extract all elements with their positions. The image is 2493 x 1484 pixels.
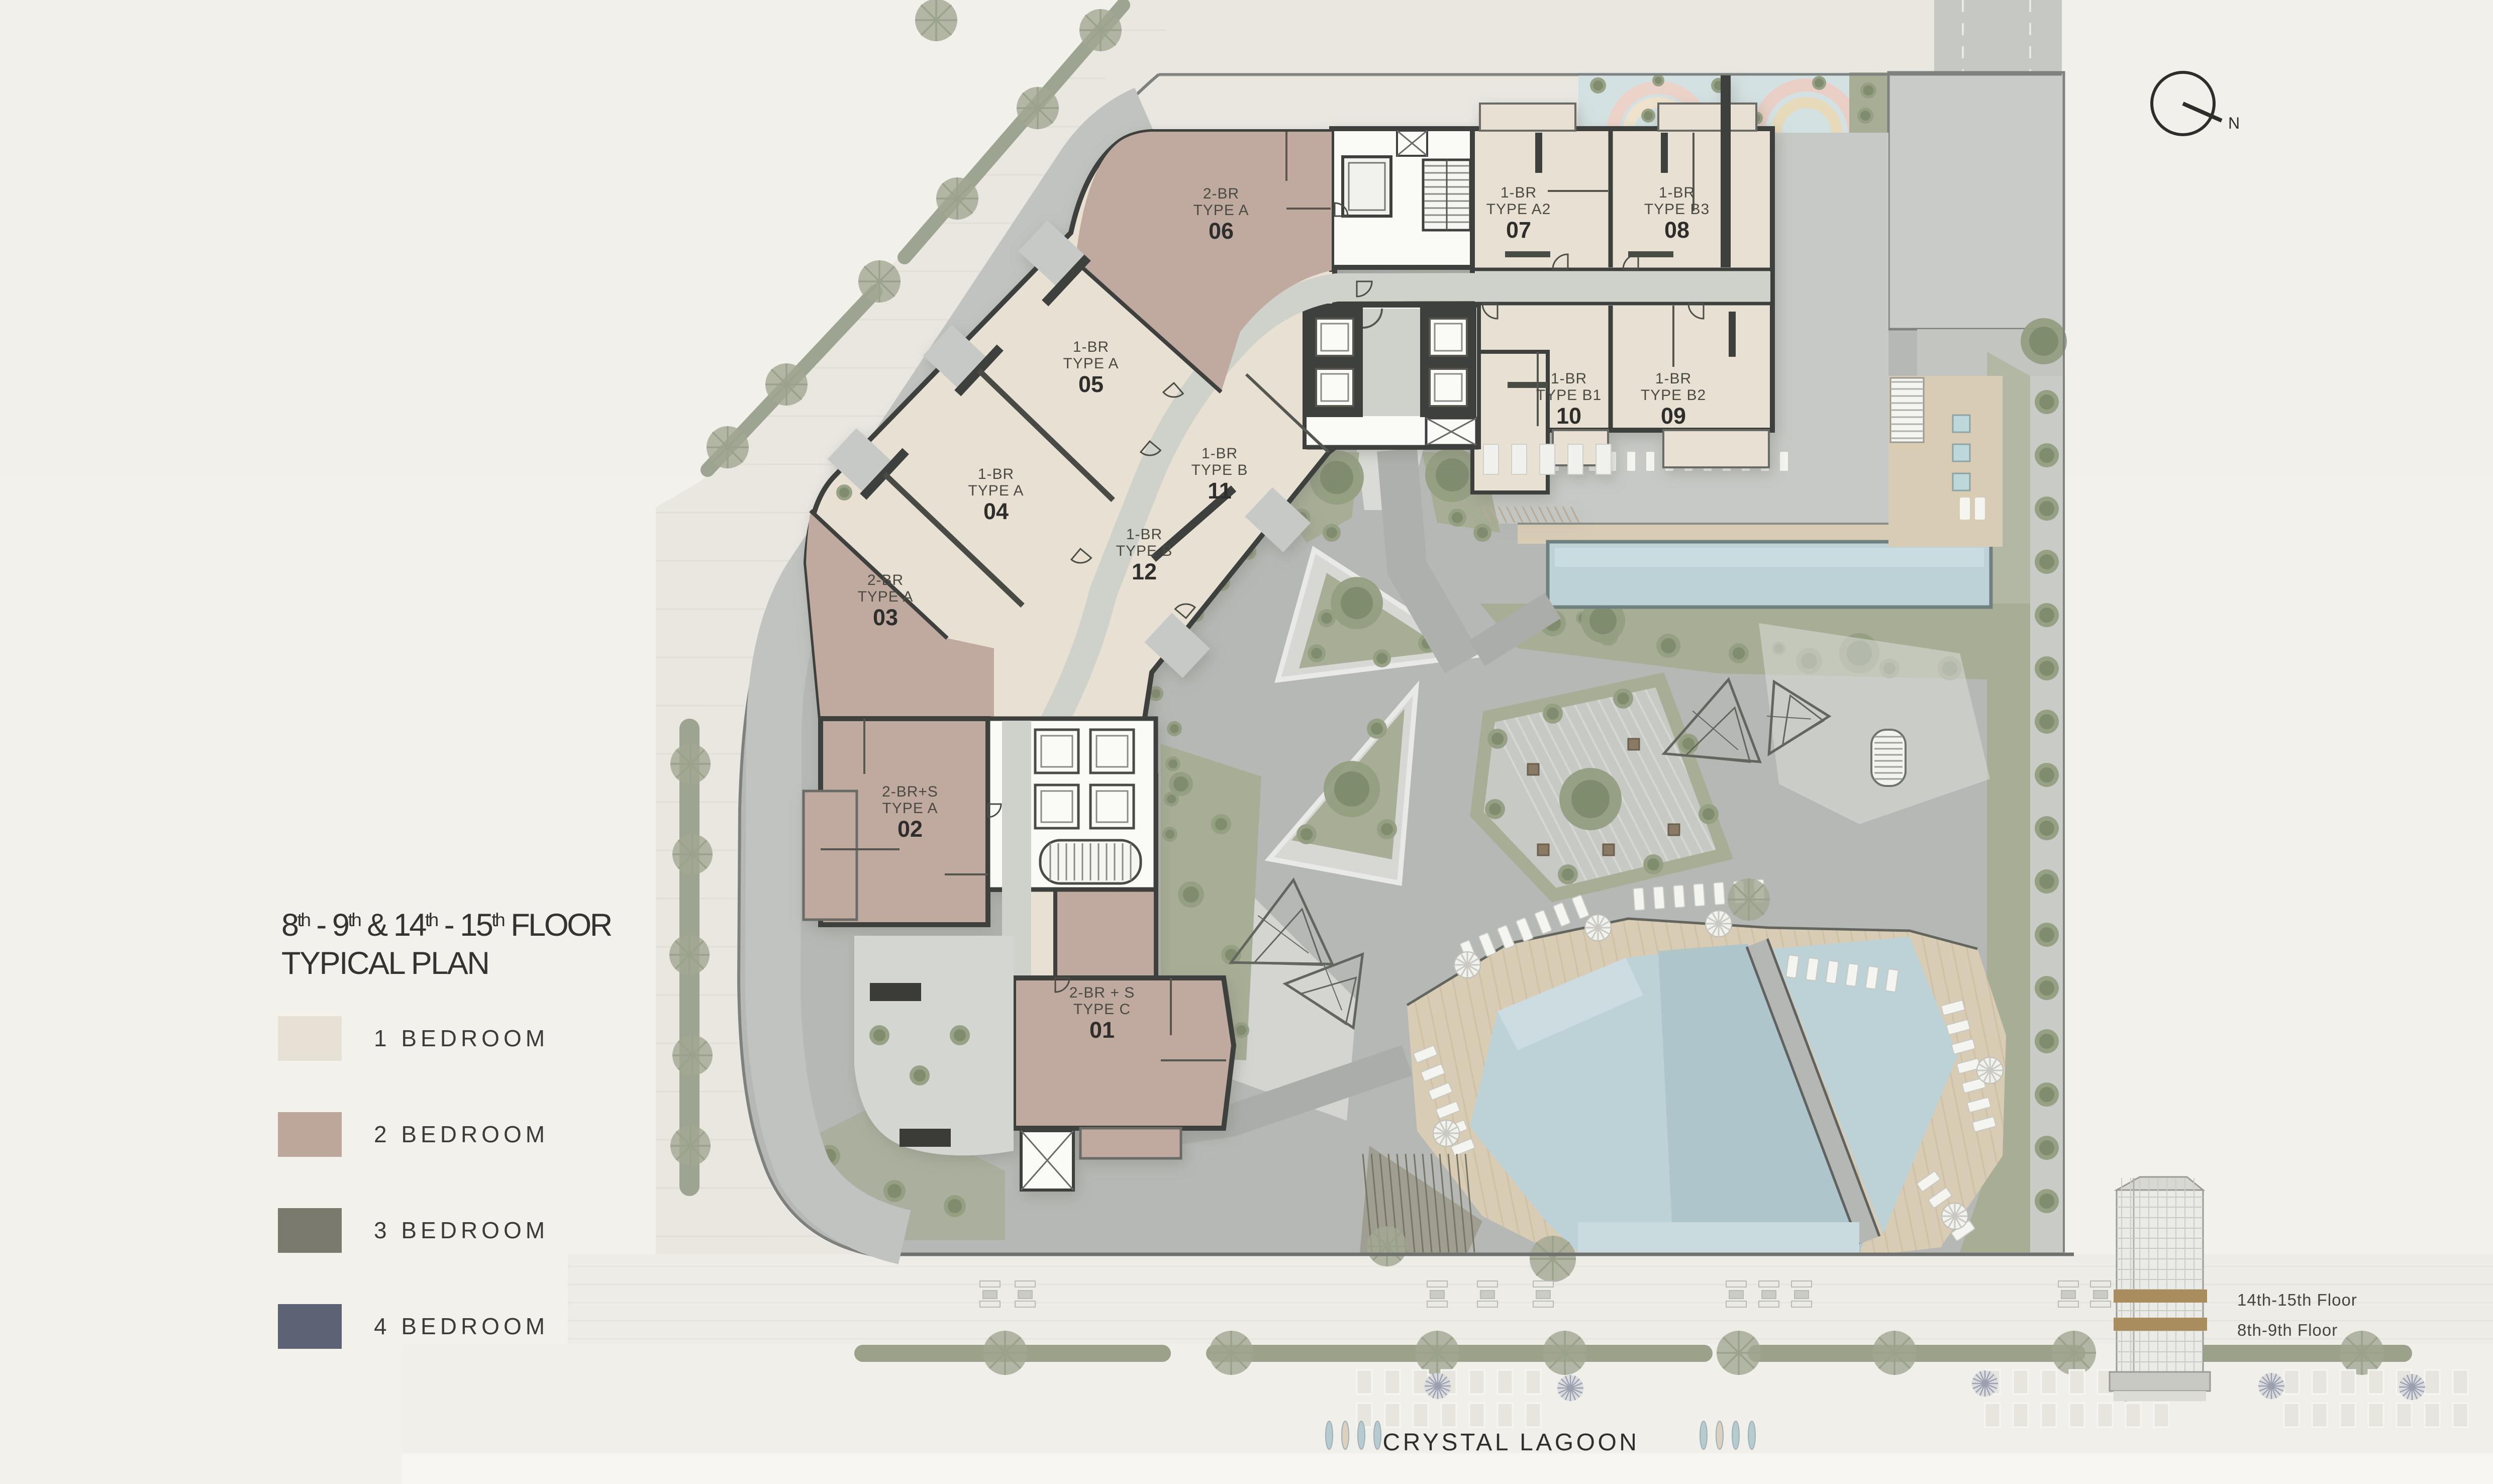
svg-text:TYPE B1: TYPE B1 (1536, 387, 1602, 404)
svg-text:TYPE A: TYPE A (882, 800, 938, 817)
svg-text:1-BR: 1-BR (1073, 339, 1109, 355)
svg-text:1-BR: 1-BR (1659, 184, 1695, 201)
svg-text:05: 05 (1078, 371, 1104, 397)
svg-text:2-BR: 2-BR (867, 572, 904, 588)
svg-text:TYPE B2: TYPE B2 (1641, 387, 1706, 404)
svg-text:3 BEDROOM: 3 BEDROOM (374, 1217, 549, 1243)
svg-text:03: 03 (873, 605, 898, 630)
svg-text:TYPE A2: TYPE A2 (1486, 201, 1551, 218)
svg-text:1-BR: 1-BR (1551, 370, 1587, 387)
svg-text:06: 06 (1209, 218, 1234, 244)
svg-text:TYPE A: TYPE A (1193, 202, 1249, 219)
svg-text:2-BR: 2-BR (1203, 185, 1239, 202)
svg-text:N: N (2228, 114, 2240, 132)
svg-text:1-BR: 1-BR (1126, 526, 1162, 543)
svg-text:2-BR+S: 2-BR+S (882, 783, 938, 800)
svg-text:1 BEDROOM: 1 BEDROOM (374, 1025, 549, 1051)
svg-text:11: 11 (1208, 478, 1232, 504)
svg-text:8th-9th Floor: 8th-9th Floor (2237, 1321, 2338, 1339)
svg-text:04: 04 (983, 499, 1009, 524)
svg-text:02: 02 (898, 816, 923, 842)
svg-text:01: 01 (1089, 1017, 1115, 1043)
svg-text:TYPE C: TYPE C (1073, 1001, 1131, 1018)
svg-text:TYPICAL PLAN: TYPICAL PLAN (281, 946, 488, 981)
svg-text:8th - 9th & 14th - 15th FLOOR: 8th - 9th & 14th - 15th FLOOR (281, 908, 612, 943)
svg-text:2-BR + S: 2-BR + S (1069, 984, 1135, 1001)
svg-text:TYPE B: TYPE B (1191, 462, 1248, 478)
svg-text:TYPE B: TYPE B (1116, 543, 1173, 559)
svg-text:TYPE A: TYPE A (1063, 355, 1119, 372)
svg-text:TYPE A: TYPE A (968, 482, 1024, 499)
svg-text:1-BR: 1-BR (1202, 445, 1238, 462)
svg-text:12: 12 (1132, 559, 1157, 584)
svg-text:10: 10 (1556, 403, 1581, 429)
svg-text:1-BR: 1-BR (978, 466, 1014, 482)
svg-text:07: 07 (1506, 217, 1531, 243)
svg-text:1-BR: 1-BR (1655, 370, 1691, 387)
svg-text:TYPE B3: TYPE B3 (1644, 201, 1710, 218)
svg-text:09: 09 (1661, 403, 1686, 429)
svg-text:2 BEDROOM: 2 BEDROOM (374, 1121, 549, 1147)
svg-text:CRYSTAL LAGOON: CRYSTAL LAGOON (1383, 1429, 1640, 1456)
svg-text:1-BR: 1-BR (1501, 184, 1537, 201)
svg-text:TYPE A: TYPE A (857, 588, 913, 605)
svg-text:14th-15th Floor: 14th-15th Floor (2237, 1291, 2357, 1309)
svg-text:08: 08 (1664, 217, 1689, 243)
svg-text:4 BEDROOM: 4 BEDROOM (374, 1313, 549, 1339)
